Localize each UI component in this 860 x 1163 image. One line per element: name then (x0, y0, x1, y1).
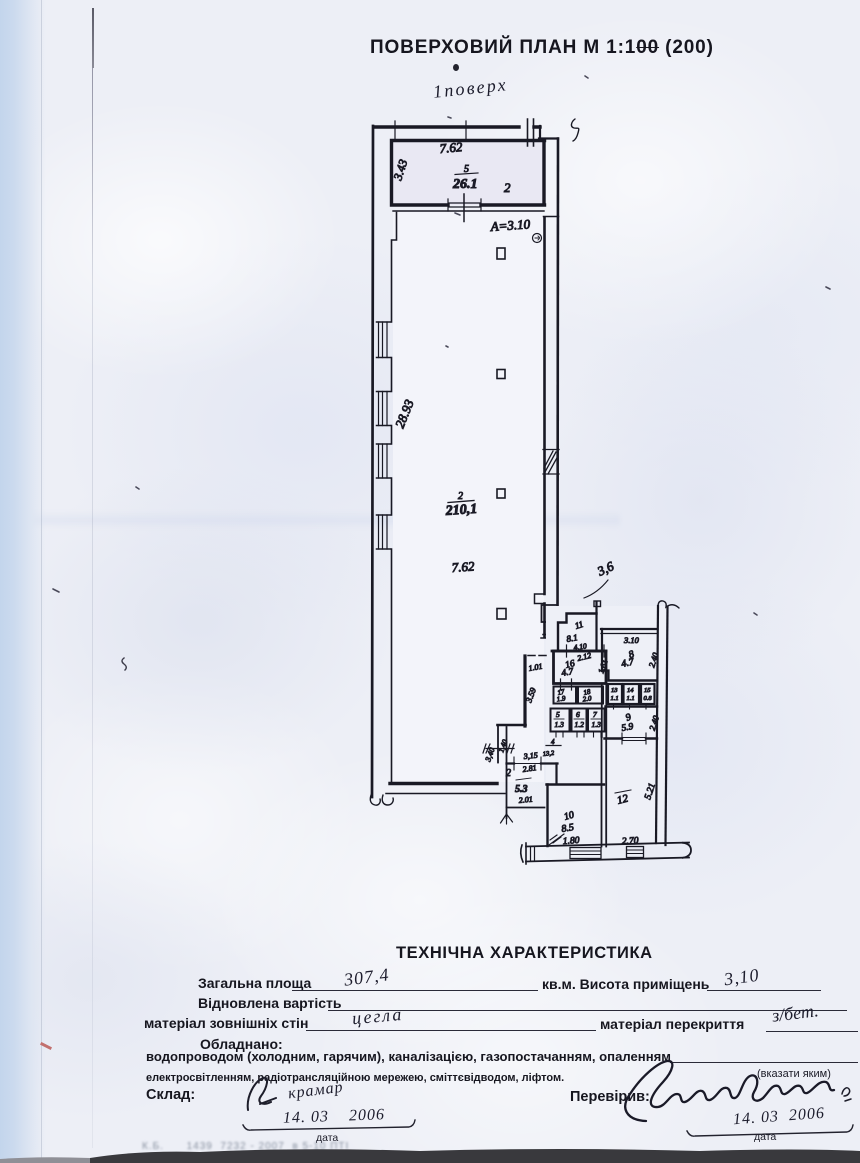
svg-text:2.01: 2.01 (518, 795, 533, 805)
svg-text:2: 2 (458, 491, 463, 502)
svg-text:1.3: 1.3 (592, 720, 602, 729)
svg-text:2.0: 2.0 (582, 694, 592, 703)
svg-text:3.10: 3.10 (623, 635, 640, 645)
svg-text:1.3: 1.3 (555, 720, 565, 729)
svg-text:4: 4 (551, 738, 555, 746)
svg-text:3,6: 3,6 (594, 558, 616, 579)
svg-text:5.3: 5.3 (515, 784, 528, 795)
svg-text:8.5: 8.5 (561, 822, 575, 835)
svg-text:14: 14 (627, 687, 634, 694)
svg-text:1.9: 1.9 (556, 694, 566, 703)
svg-text:26.1: 26.1 (452, 177, 478, 192)
svg-text:5.9: 5.9 (621, 722, 635, 734)
svg-text:15: 15 (644, 687, 651, 694)
svg-text:3,15: 3,15 (522, 751, 538, 762)
svg-text:А=3.10: А=3.10 (489, 216, 531, 234)
svg-text:2.70: 2.70 (622, 836, 639, 847)
svg-text:1.1: 1.1 (627, 695, 635, 702)
svg-text:2: 2 (506, 768, 511, 779)
svg-text:2: 2 (504, 180, 511, 195)
svg-text:210,1: 210,1 (444, 502, 477, 519)
svg-text:6: 6 (576, 710, 580, 719)
svg-text:1.1: 1.1 (611, 695, 619, 702)
svg-text:7.62: 7.62 (451, 558, 475, 575)
svg-text:5: 5 (556, 710, 560, 719)
svg-text:7.62: 7.62 (439, 139, 463, 156)
svg-text:7: 7 (593, 710, 597, 719)
svg-text:0.8: 0.8 (644, 695, 653, 702)
svg-text:13,2: 13,2 (542, 750, 555, 758)
svg-text:1.2: 1.2 (575, 720, 585, 729)
svg-text:13: 13 (611, 687, 618, 694)
